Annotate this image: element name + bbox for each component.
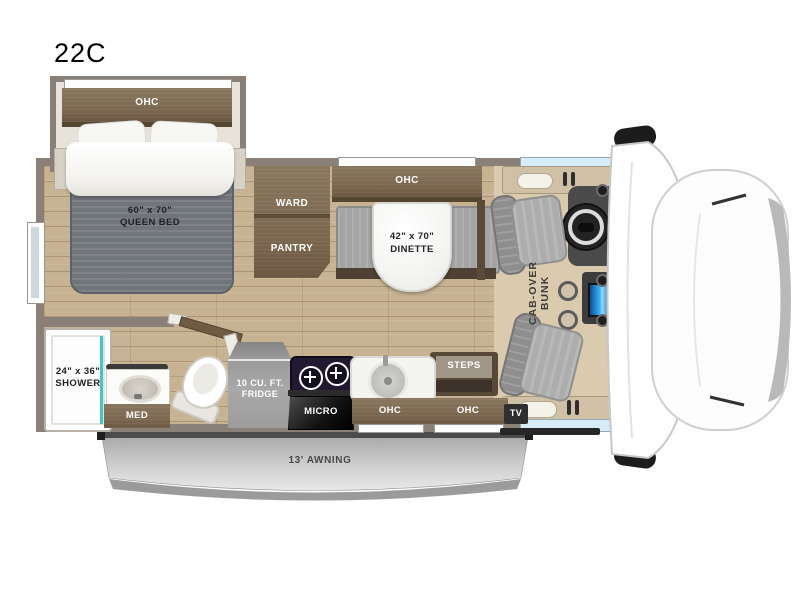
rv-floorplan-diagram: 22C 13' AWNING OHC 60" x 70": [0, 0, 800, 600]
floorplan-title: 22C: [54, 38, 107, 69]
cab-front-exterior: [0, 0, 800, 600]
